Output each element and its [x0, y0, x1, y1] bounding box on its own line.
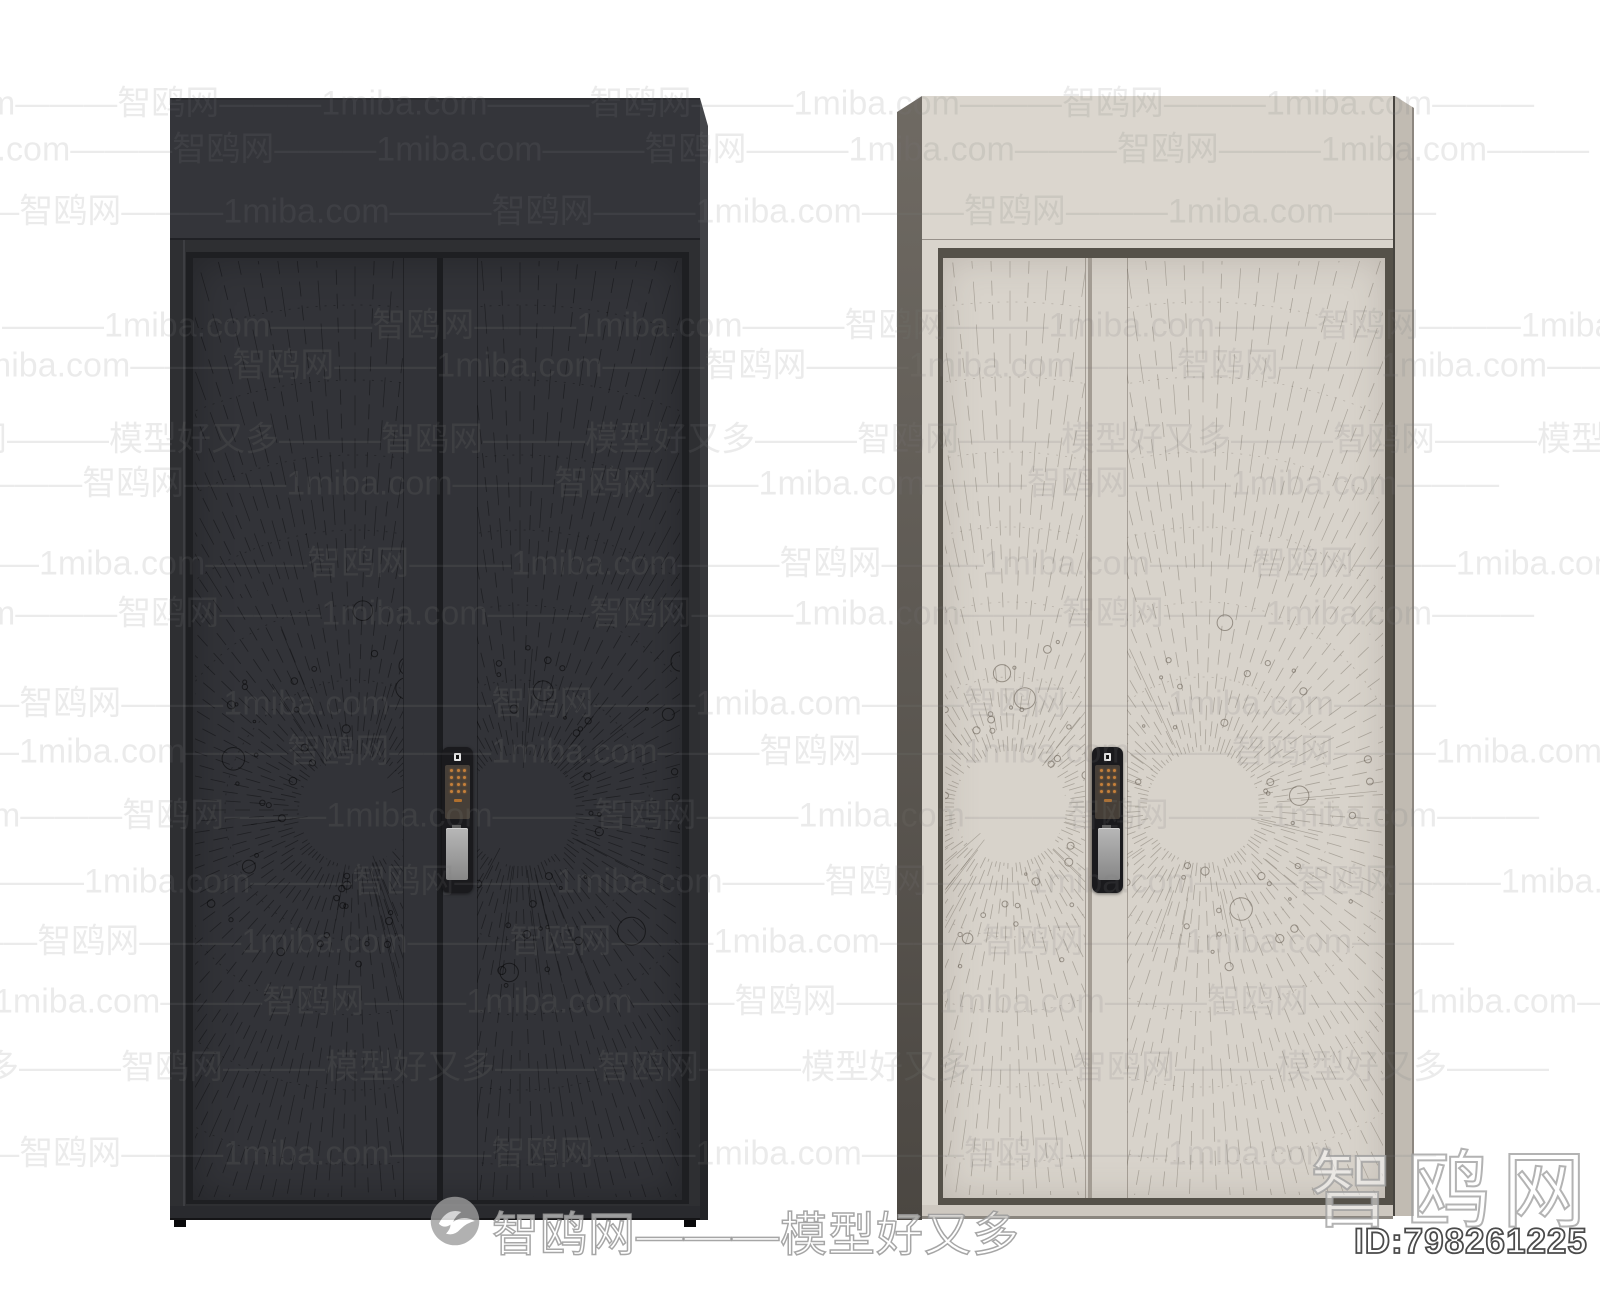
footer-brand-watermark: 智鸥网———模型好又多 — [492, 1196, 1020, 1265]
product-render-page: 智鸥网———1miba.com———智鸥网———1miba.com———智鸥网—… — [0, 0, 1600, 1298]
lock-keypad-dot — [1113, 776, 1116, 779]
lock-camera-sensor — [1104, 753, 1111, 761]
lock-pull-handle — [446, 828, 468, 880]
lock-keypad-dot — [450, 783, 453, 786]
black-door-transom-panel — [170, 100, 700, 240]
leaf-panel-groove — [1127, 258, 1128, 1198]
lock-keypad-dot — [463, 776, 466, 779]
smart-lock — [442, 747, 473, 893]
lock-keypad-zero-key — [454, 799, 462, 802]
beige-door-carved-pattern — [943, 258, 1385, 1198]
lock-keypad-dot — [457, 790, 460, 793]
beige-door-leaves — [943, 258, 1385, 1198]
lock-keypad-dot — [450, 790, 453, 793]
lock-keypad-dot — [463, 790, 466, 793]
lock-keypad-dot — [457, 776, 460, 779]
lock-keypad-dot — [457, 769, 460, 772]
lock-keypad-dot — [463, 783, 466, 786]
lock-keypad-dot — [1113, 783, 1116, 786]
lock-keypad-dot — [450, 769, 453, 772]
lock-keypad-dot — [1113, 769, 1116, 772]
lock-keypad-dot — [450, 776, 453, 779]
beige-door-transom-panel — [922, 96, 1393, 240]
lock-keypad-dot — [1100, 790, 1103, 793]
lock-keypad-dot — [463, 769, 466, 772]
black-door-jamb-highlight — [183, 240, 185, 1206]
leaf-panel-groove — [1085, 258, 1086, 1198]
beige-door-outer-jamb — [1395, 96, 1414, 1216]
lock-keypad-dot — [1100, 783, 1103, 786]
lock-keypad-dot — [1107, 783, 1110, 786]
door-leaf-gap — [437, 258, 443, 1200]
beige-door-side-face — [897, 96, 922, 1220]
black-door-leaves — [193, 258, 682, 1200]
model-id-label: ID:798261225 — [1354, 1222, 1588, 1262]
lock-keypad-zero-key — [1104, 799, 1112, 802]
lock-keypad-dot — [1100, 776, 1103, 779]
lock-camera-sensor — [454, 753, 461, 761]
lock-keypad-dot — [457, 783, 460, 786]
lock-keypad-dot — [1107, 769, 1110, 772]
lock-keypad-dot — [1107, 776, 1110, 779]
leaf-panel-groove — [477, 258, 478, 1200]
black-door-foot — [174, 1220, 186, 1227]
lock-keypad-dot — [1107, 790, 1110, 793]
smart-lock — [1092, 747, 1123, 893]
seagull-logo-icon — [428, 1194, 482, 1248]
black-door-side-face — [700, 98, 708, 1220]
lock-keypad-dot — [1113, 790, 1116, 793]
beige-double-door-unit — [897, 94, 1415, 1224]
lock-pull-handle — [1098, 828, 1120, 880]
beige-door-frame-edge — [1393, 96, 1395, 1216]
black-double-door-unit — [170, 98, 708, 1228]
leaf-panel-groove — [403, 258, 404, 1200]
lock-keypad-dot — [1100, 769, 1103, 772]
door-leaf-gap — [1088, 258, 1092, 1198]
